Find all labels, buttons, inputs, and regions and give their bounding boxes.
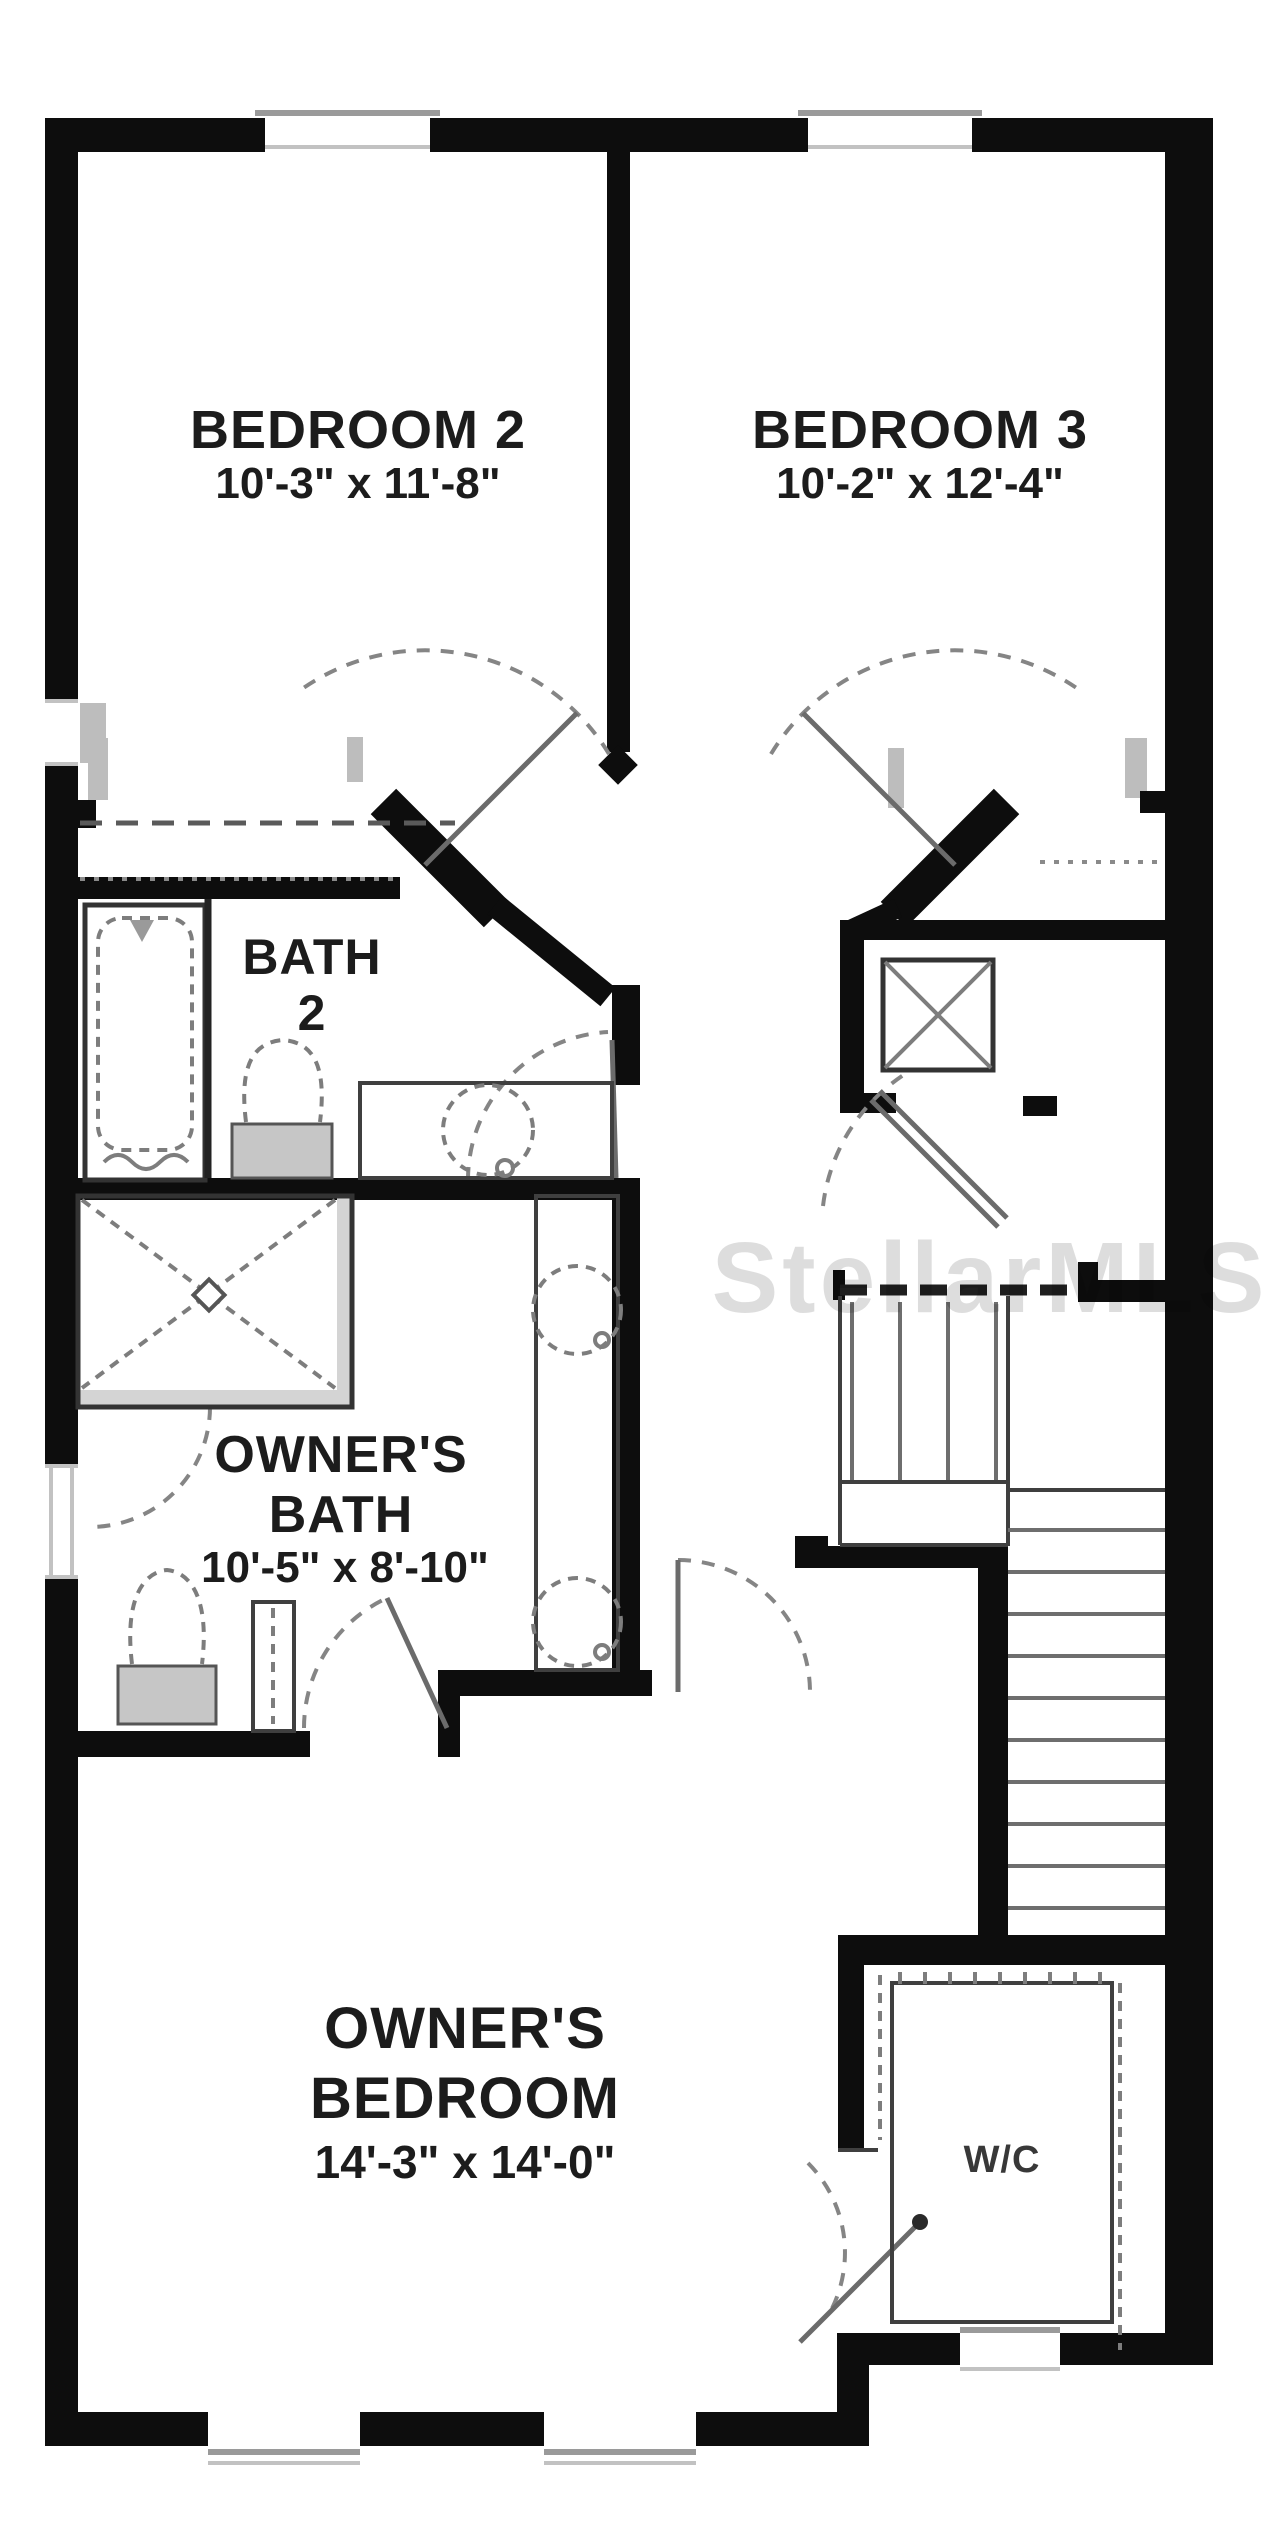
dims-owners-bedroom: 14'-3" x 14'-0"	[315, 2136, 616, 2188]
closet-left-tick-a	[88, 738, 108, 800]
toilet-bath2	[232, 1040, 332, 1178]
window-closet-right-jamb	[1125, 738, 1147, 798]
wall-step-connector	[837, 2333, 869, 2446]
label-bedroom2: BEDROOM 2	[190, 400, 526, 460]
label-bedroom3: BEDROOM 3	[752, 400, 1088, 460]
door-leaf-bedroom2	[425, 713, 577, 865]
wall-left-middle	[45, 765, 78, 1465]
linen-closet-x	[883, 960, 993, 1070]
wall-linen-left	[840, 922, 864, 1113]
vanity-owners-bath	[533, 1196, 621, 1670]
label-wc: W/C	[964, 2139, 1041, 2181]
wall-bottom-middle	[360, 2412, 544, 2446]
label-bath2-line1: BATH	[242, 929, 381, 985]
closet-left-tick-b	[347, 737, 363, 782]
toilet-owners-tank	[118, 1666, 216, 1724]
label-owners-bedroom-line1: OWNER'S	[324, 1996, 606, 2061]
walk-in-shower	[78, 1196, 352, 1407]
dims-bedroom3: 10'-2" x 12'-4"	[776, 459, 1064, 508]
divider-door-stop	[598, 745, 638, 785]
door-arc-owners-bedroom	[678, 1560, 810, 1692]
wall-top-middle	[430, 118, 808, 152]
door-arc-shower	[90, 1407, 210, 1527]
floor-plan-drawing: BEDROOM 2 10'-3" x 11'-8" BEDROOM 3 10'-…	[0, 0, 1280, 2526]
bathtub-inner	[98, 918, 192, 1150]
wall-linen-top	[840, 920, 1165, 940]
door-leaf-linen-2	[880, 1091, 1007, 1218]
sink-bath2	[443, 1085, 533, 1175]
watermark-stellar-mls: StellarMLS	[712, 1222, 1269, 1334]
dims-owners-bath: 10'-5" x 8'-10"	[201, 1543, 489, 1592]
wall-hall-central-upper	[612, 985, 640, 1085]
toilet-bath2-bowl	[244, 1040, 322, 1122]
wall-left-upper	[45, 118, 78, 703]
door-leaf-linen-1	[871, 1100, 998, 1227]
door-arc-owners-bath	[304, 1598, 387, 1728]
linen-cabinet-owners-bath	[253, 1602, 294, 1731]
wall-bottom-left	[45, 2412, 208, 2446]
label-bath2-line2: 2	[298, 985, 327, 1041]
toilet-owners-bowl	[130, 1570, 204, 1664]
wall-landing-bar	[795, 1546, 987, 1568]
door-hinge-wc	[912, 2214, 928, 2230]
floor-plan: BEDROOM 2 10'-3" x 11'-8" BEDROOM 3 10'-…	[0, 0, 1280, 2526]
jamb-left-angled	[371, 789, 510, 928]
wall-wc-left	[838, 1935, 864, 2150]
door-leaf-bedroom3	[803, 713, 955, 865]
dims-bedroom2: 10'-3" x 11'-8"	[215, 459, 500, 508]
wall-diag-left	[495, 905, 608, 997]
shower-curb-right	[337, 1198, 350, 1403]
door-arc-owners-suite-hall	[468, 1032, 608, 1180]
bathtub-waterline	[104, 1155, 188, 1169]
label-owners-bath-line2: BATH	[269, 1486, 414, 1544]
sink-bath2-faucet	[497, 1160, 513, 1176]
wall-left-lower	[45, 1578, 78, 2446]
toilet-bath2-tank	[232, 1124, 332, 1178]
shower-drain	[193, 1279, 224, 1310]
door-arc-bedroom3	[771, 650, 1078, 754]
shower-curb-bottom	[80, 1390, 350, 1405]
wall-stair-side	[978, 1546, 1008, 1938]
label-owners-bath-line1: OWNER'S	[214, 1426, 467, 1484]
wall-wc-top	[838, 1935, 1213, 1965]
linen-stub-right	[1023, 1096, 1057, 1116]
wall-ownersbath-bottom-right	[438, 1670, 652, 1696]
door-leaf-owners-bath	[387, 1598, 447, 1728]
vanity-bath2	[360, 1083, 612, 1178]
closet-right-stub	[1140, 791, 1168, 813]
bathtub-outline	[85, 905, 205, 1180]
wall-ownersbath-bottom-left	[73, 1731, 310, 1757]
toilet-owners-bath	[118, 1570, 216, 1724]
wall-bedroom-divider	[607, 152, 630, 752]
vanity-bath2-counter	[360, 1083, 612, 1178]
bathtub	[85, 899, 208, 1180]
wall-wc-bottom-right	[1060, 2333, 1213, 2365]
bathtub-spout	[130, 920, 154, 942]
door-arc-wc	[808, 2163, 845, 2316]
label-owners-bedroom-line2: BEDROOM	[310, 2066, 620, 2131]
